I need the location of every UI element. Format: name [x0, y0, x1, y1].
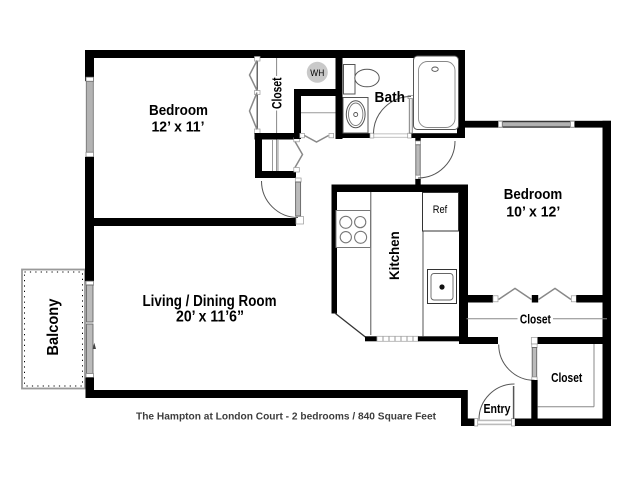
svg-text:Ref: Ref	[433, 204, 448, 216]
svg-text:Closet: Closet	[520, 313, 552, 327]
svg-text:WH: WH	[310, 68, 324, 79]
svg-text:Balcony: Balcony	[45, 298, 62, 355]
svg-text:12’ x 11’: 12’ x 11’	[152, 118, 205, 135]
svg-text:Kitchen: Kitchen	[387, 231, 402, 280]
svg-text:Closet: Closet	[270, 77, 285, 109]
svg-text:Entry: Entry	[483, 402, 510, 416]
svg-text:10’ x 12’: 10’ x 12’	[506, 203, 560, 220]
svg-text:Bath: Bath	[375, 90, 406, 106]
svg-text:Bedroom: Bedroom	[149, 102, 208, 119]
svg-text:Closet: Closet	[551, 371, 583, 385]
svg-text:Bedroom: Bedroom	[504, 186, 563, 203]
svg-text:Living / Dining Room: Living / Dining Room	[143, 293, 277, 310]
svg-text:20’ x 11’6”: 20’ x 11’6”	[176, 308, 244, 325]
svg-text:The Hampton at London Court -: The Hampton at London Court - 2 bedrooms…	[136, 411, 437, 422]
